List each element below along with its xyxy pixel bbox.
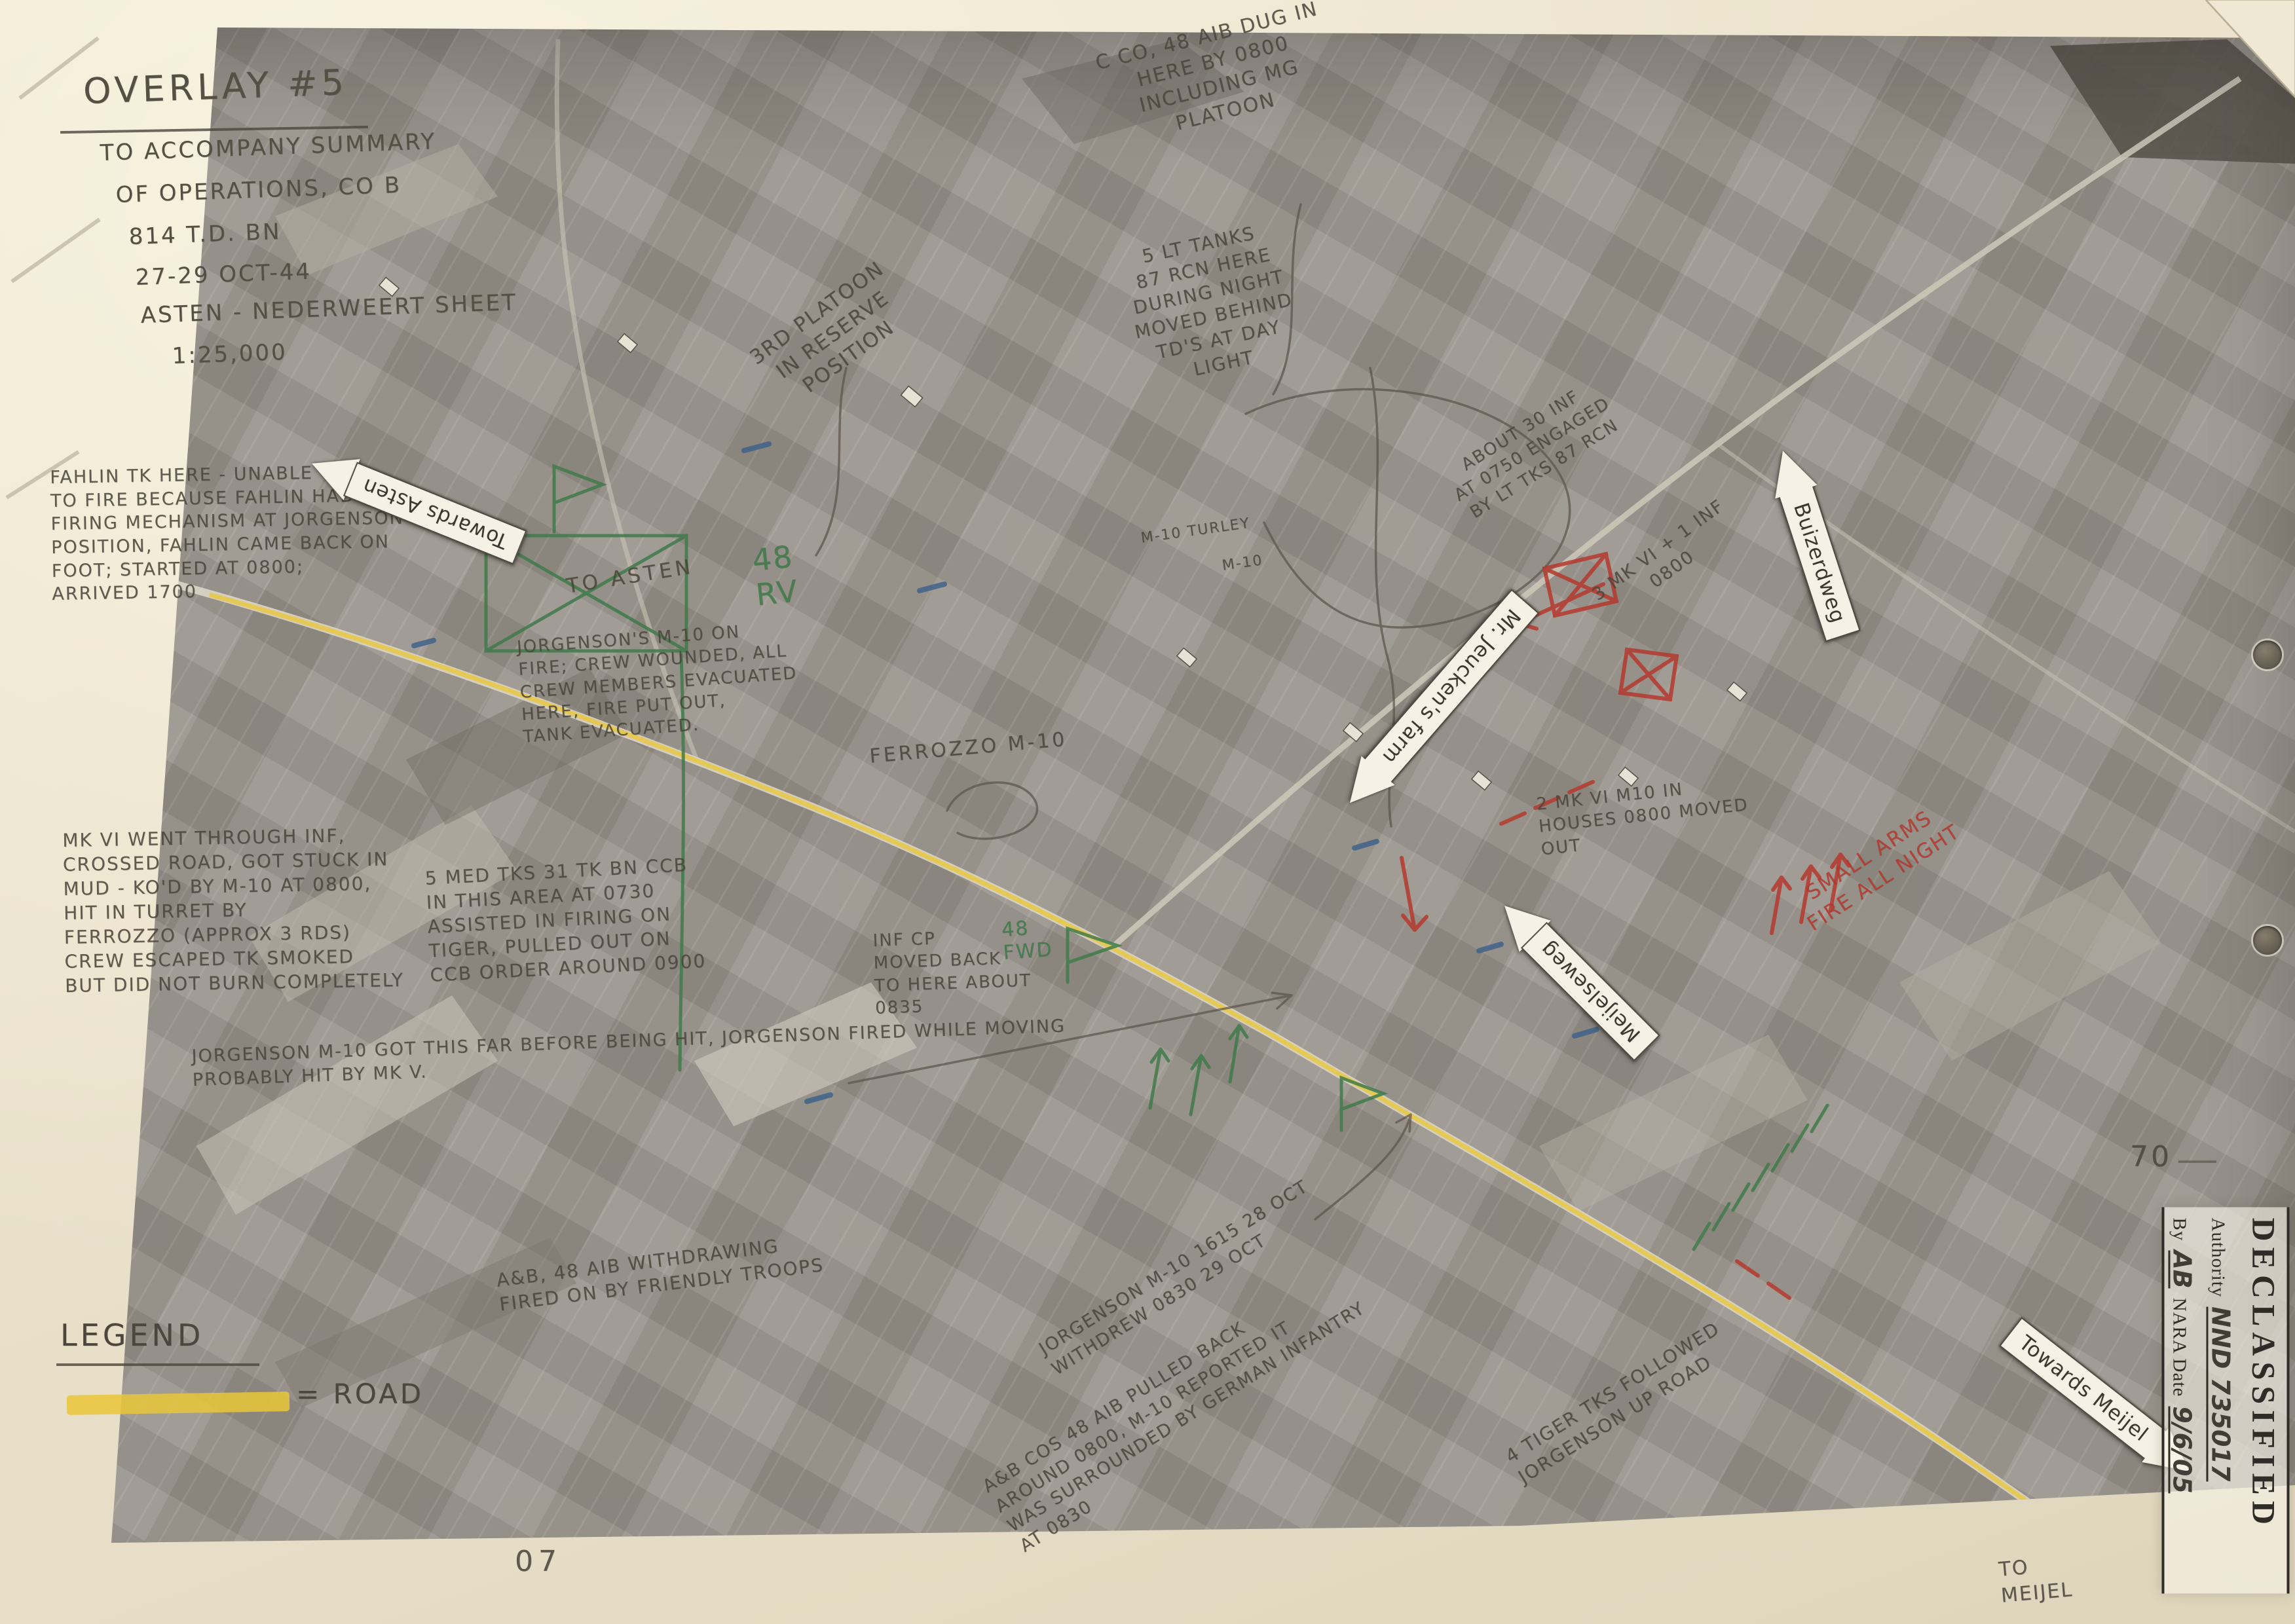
enemy-tank-box (1620, 650, 1677, 699)
red-dashes (1737, 1261, 1789, 1298)
legend-road-swatch (67, 1392, 289, 1415)
note-mkvi-stuck: MK VI WENT THROUGH INF, CROSSED ROAD, GO… (62, 823, 404, 999)
stamp-nara-label: NARA Date (2169, 1298, 2190, 1397)
stamp-by-value: AB (2169, 1250, 2194, 1288)
green-advance-arrow (1150, 1049, 1168, 1108)
legend-underline (56, 1363, 259, 1366)
page-corner-fold (2197, 0, 2295, 98)
red-down-arrow (1402, 858, 1427, 930)
stamp-authority-label: Authority (2207, 1218, 2228, 1298)
grid-label-07: 07 (515, 1543, 562, 1581)
hole-punch (2253, 926, 2282, 955)
symbol-48-rv: 48 RV (751, 539, 800, 612)
stamp-authority-value: NND 735017 (2207, 1306, 2232, 1481)
unit-pennant-flag (554, 466, 603, 532)
note-jorgenson-fire: JORGENSON'S M-10 ON FIRE; CREW WOUNDED, … (516, 617, 801, 748)
hole-punch (2253, 640, 2282, 669)
declassified-stamp: DECLASSIFIED Authority NND 735017 By AB … (2162, 1208, 2290, 1594)
note-med-tks: 5 MED TKS 31 TK BN CCB IN THIS AREA AT 0… (424, 853, 707, 988)
grid-label-70: 70 (2130, 1138, 2172, 1176)
stamp-by-label: By (2169, 1218, 2190, 1242)
pennant-flag (1341, 1078, 1383, 1130)
map-scale: 1:25,000 (172, 339, 288, 369)
legend-heading: LEGEND (60, 1318, 204, 1353)
stamp-title: DECLASSIFIED (2245, 1218, 2283, 1583)
fwd-pennant-flag (1068, 929, 1117, 982)
legend-road-label: = ROAD (296, 1378, 424, 1410)
green-advance-arrow (1230, 1025, 1247, 1082)
symbol-48-fwd: 48 FWD (1001, 916, 1054, 965)
green-hatch-marks (1694, 1105, 1827, 1249)
green-advance-arrow (1191, 1056, 1209, 1115)
stamp-date-value: 9/6/05 (2169, 1406, 2194, 1494)
title-line: 814 T.D. BN (128, 219, 282, 250)
scanned-overlay-page: OVERLAY #5 TO ACCOMPANY SUMMARY OF OPERA… (0, 0, 2295, 1624)
note-to-meijel: TO MEIJEL (1998, 1551, 2074, 1608)
